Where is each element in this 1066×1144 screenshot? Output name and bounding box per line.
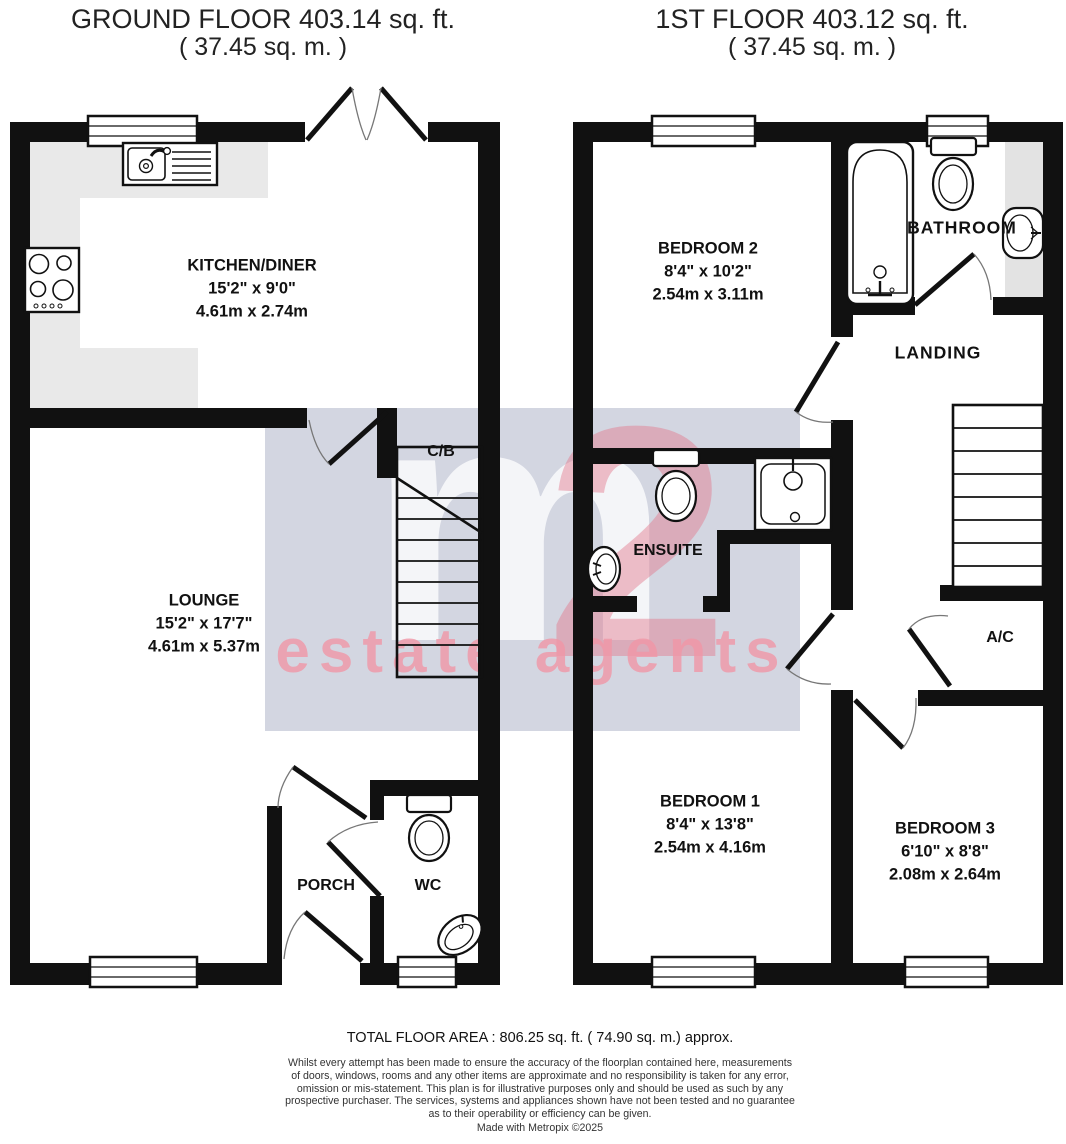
kitchen-window [88, 116, 197, 146]
kitchen-metric: 4.61m x 2.74m [187, 301, 316, 324]
room-label-bedroom1: BEDROOM 1 8'4" x 13'8" 2.54m x 4.16m [654, 791, 766, 860]
bathroom-door [915, 254, 991, 305]
wc-toilet [407, 795, 451, 861]
ensuite-shower [755, 458, 831, 530]
floorplan-drawing: m 2 estate agents [0, 0, 1066, 1144]
room-label-porch: PORCH [297, 877, 355, 895]
bedroom2-imperial: 8'4" x 10'2" [652, 261, 763, 284]
lounge-name: LOUNGE [148, 590, 260, 613]
bedroom2-name: BEDROOM 2 [652, 238, 763, 261]
room-label-kitchen: KITCHEN/DINER 15'2" x 9'0" 4.61m x 2.74m [187, 255, 316, 324]
lounge-window [90, 957, 197, 987]
kitchen-imperial: 15'2" x 9'0" [187, 278, 316, 301]
floorplan-page: GROUND FLOOR 403.14 sq. ft. ( 37.45 sq. … [0, 0, 1066, 1144]
room-label-bedroom3: BEDROOM 3 6'10" x 8'8" 2.08m x 2.64m [889, 818, 1001, 887]
wc-window [398, 957, 456, 987]
ensuite-toilet [653, 450, 699, 521]
watermark-tagline: estate agents [275, 617, 788, 686]
bathtub [847, 142, 913, 304]
room-label-wc: WC [415, 877, 442, 895]
bedroom1-imperial: 8'4" x 13'8" [654, 814, 766, 837]
front-door [284, 912, 362, 961]
ensuite-basin [588, 547, 620, 591]
room-label-lounge: LOUNGE 15'2" x 17'7" 4.61m x 5.37m [148, 590, 260, 659]
bedroom3-metric: 2.08m x 2.64m [889, 864, 1001, 887]
bedroom3-imperial: 6'10" x 8'8" [889, 841, 1001, 864]
room-label-ac: A/C [986, 629, 1014, 647]
room-label-bathroom: BATHROOM [907, 218, 1017, 239]
kitchen-name: KITCHEN/DINER [187, 255, 316, 278]
patio-double-door [307, 88, 426, 140]
bedroom1-metric: 2.54m x 4.16m [654, 837, 766, 860]
room-label-ensuite: ENSUITE [633, 542, 702, 560]
bedroom3-name: BEDROOM 3 [889, 818, 1001, 841]
airing-cupboard-door [909, 616, 950, 686]
lounge-metric: 4.61m x 5.37m [148, 636, 260, 659]
bedroom3-window [905, 957, 988, 987]
bedroom2-window [652, 116, 755, 146]
lounge-porch-door [278, 767, 366, 818]
kitchen-hob [25, 248, 79, 312]
room-label-bedroom2: BEDROOM 2 8'4" x 10'2" 2.54m x 3.11m [652, 238, 763, 307]
metropix-credit: Made with Metropix ©2025 [477, 1122, 603, 1134]
bedroom1-window [652, 957, 755, 987]
total-floor-area: TOTAL FLOOR AREA : 806.25 sq. ft. ( 74.9… [347, 1030, 734, 1046]
room-label-cb: C/B [427, 443, 455, 461]
bedroom2-door [796, 342, 838, 422]
bathroom-toilet [931, 138, 976, 210]
disclaimer-text: Whilst every attempt has been made to en… [130, 1057, 950, 1121]
bedroom3-door [855, 698, 916, 748]
bedroom1-name: BEDROOM 1 [654, 791, 766, 814]
kitchen-sink-unit [123, 143, 217, 185]
bedroom2-metric: 2.54m x 3.11m [652, 284, 763, 307]
lounge-imperial: 15'2" x 17'7" [148, 613, 260, 636]
room-label-landing: LANDING [895, 343, 982, 364]
first-floor-stairs [953, 405, 1043, 587]
